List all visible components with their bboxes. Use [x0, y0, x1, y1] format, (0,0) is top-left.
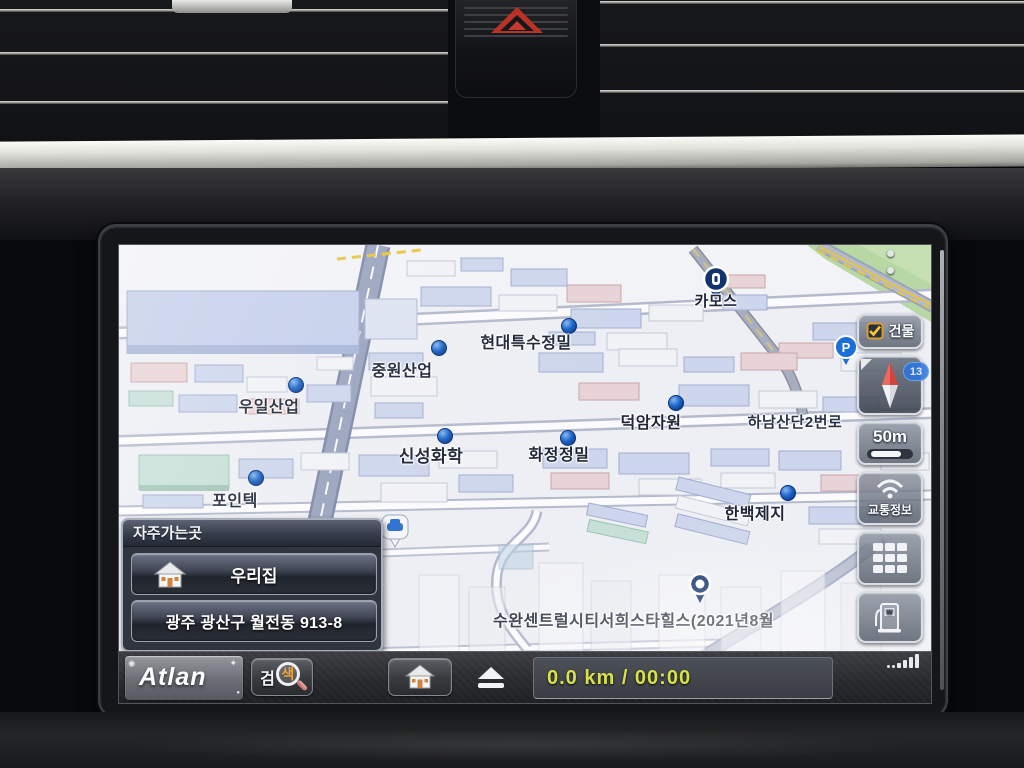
search-button[interactable]: 검 색 — [251, 658, 313, 696]
dashboard-bottom — [0, 712, 1024, 768]
scale-label: 50m — [873, 427, 907, 447]
traffic-info-label: 교통정보 — [868, 501, 912, 518]
search-icon: 색 — [274, 662, 304, 692]
vent-slat — [0, 52, 448, 55]
home-icon — [405, 664, 435, 690]
home-icon — [154, 561, 186, 589]
hazard-triangle-icon — [489, 6, 545, 36]
map-label-kamos: 카모스 — [695, 290, 738, 311]
favorites-panel: 자주가는곳 우리집 광주 광산구 월전동 913-8 — [121, 518, 383, 652]
bezel-edge-highlight — [940, 250, 944, 690]
svg-text:P: P — [842, 340, 851, 355]
vent-adjuster-knob — [172, 0, 292, 13]
trip-info-text: 0.0 km / 00:00 — [547, 667, 691, 690]
home-button[interactable] — [388, 658, 452, 696]
atlan-logo: Atlan — [139, 663, 207, 692]
map-label-hanbaek: 한백제지 — [725, 500, 786, 524]
map-label-shinsung: 신성화학 — [399, 442, 464, 467]
navigation-display[interactable]: P 카모스 현대특수정밀 중원산업 우일산업 덕암자원 하남산단2번로 신성화학… — [118, 244, 932, 704]
compass-button[interactable]: 13 — [857, 355, 923, 415]
sparkle-icon: ✦ — [229, 658, 237, 669]
sparkle-icon: ● — [236, 690, 240, 696]
hazard-light-button — [455, 0, 577, 98]
favorites-panel-title: 자주가는곳 — [123, 520, 381, 547]
map-label-deokam: 덕암자원 — [621, 409, 682, 433]
search-label-prefix: 검 — [260, 665, 275, 689]
magnifier-handle — [296, 679, 308, 691]
atlan-logo-panel: ✺ ✦ ● Atlan — [125, 656, 243, 700]
bezel-screw-dots — [887, 250, 894, 284]
map-label-hyundai: 현대특수정밀 — [480, 329, 571, 353]
compass-needle-icon — [879, 361, 901, 409]
vent-slat — [600, 90, 1024, 93]
favorite-home-button[interactable]: 우리집 — [131, 553, 377, 595]
eject-icon — [476, 666, 506, 690]
grid-icon — [872, 542, 908, 574]
eject-button[interactable] — [474, 664, 508, 692]
building-toggle-button[interactable]: 건물 — [857, 313, 923, 349]
map-label-road-hanam: 하남산단2번로 — [748, 411, 843, 432]
vent-slat — [600, 1, 1024, 4]
favorite-address-button[interactable]: 광주 광산구 월전동 913-8 — [131, 600, 377, 642]
map-label-suwan: 수완센트럴시티서희스타힐스(2021년8월 — [493, 607, 774, 631]
building-toggle-label: 건물 — [889, 321, 915, 341]
car-dashboard-scene: P 카모스 현대특수정밀 중원산업 우일산업 덕암자원 하남산단2번로 신성화학… — [0, 0, 1024, 768]
signal-strength-icon — [887, 654, 919, 668]
corner-fold — [861, 359, 872, 370]
favorite-home-label: 우리집 — [231, 562, 278, 587]
trip-info-panel: 0.0 km / 00:00 — [533, 657, 833, 699]
search-label-suffix: 색 — [281, 664, 294, 684]
fuel-price-button[interactable]: W — [857, 591, 923, 643]
traffic-info-button[interactable]: 교통정보 — [857, 471, 923, 525]
fuel-pump-icon: W — [873, 600, 907, 634]
map-label-hwajung: 화정정밀 — [529, 441, 590, 465]
vent-slat — [0, 101, 448, 104]
dashboard-sheen — [140, 730, 900, 760]
menu-grid-button[interactable] — [857, 531, 923, 585]
checkbox-checked-icon — [866, 322, 884, 340]
wifi-icon — [875, 479, 905, 499]
sparkle-icon: ✺ — [128, 659, 136, 670]
favorite-address-label: 광주 광산구 월전동 913-8 — [166, 609, 343, 633]
dashboard-top — [0, 0, 1024, 240]
bottom-bar: ✺ ✦ ● Atlan 검 색 — [119, 651, 932, 703]
scale-bar — [867, 449, 913, 459]
map-label-jungwon: 중원산업 — [372, 357, 433, 381]
favorites-panel-body: 우리집 광주 광산구 월전동 913-8 — [123, 547, 381, 650]
map-label-pointek: 포인텍 — [212, 487, 258, 511]
gps-count-badge: 13 — [903, 362, 929, 381]
vent-slat — [600, 44, 1024, 47]
map-scale-button[interactable]: 50m — [857, 421, 923, 465]
navigation-head-unit: P 카모스 현대특수정밀 중원산업 우일산업 덕암자원 하남산단2번로 신성화학… — [98, 224, 948, 718]
svg-text:W: W — [886, 610, 893, 617]
map-toolbar: 건물 13 50m — [857, 313, 923, 643]
map-label-wooil: 우일산업 — [239, 393, 300, 417]
scale-bar-fill — [871, 451, 901, 457]
